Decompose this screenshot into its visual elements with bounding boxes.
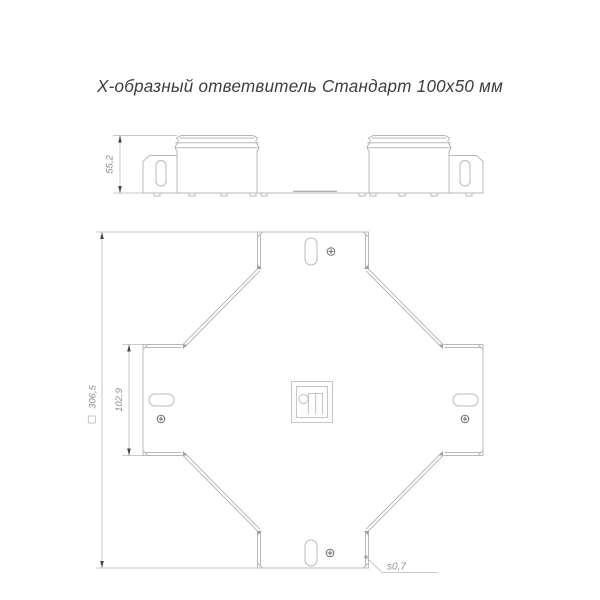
arrow-up-icon xyxy=(118,136,122,143)
mounting-slot xyxy=(460,161,470,187)
bottom-arm-slot xyxy=(305,540,317,566)
dim-text-overall: 306,5 xyxy=(88,384,99,408)
arrow-down-icon xyxy=(127,449,131,456)
brand-logo-icon xyxy=(292,382,333,423)
corner-chamfer-marks xyxy=(143,232,483,568)
side-view: 55,2 xyxy=(105,136,484,197)
screw-head-icon xyxy=(461,415,469,423)
drawing-canvas: Х-образный ответвитель Стандарт 100х50 м… xyxy=(0,0,600,600)
plate-outline xyxy=(143,232,483,568)
thickness-leader: s0,7 xyxy=(364,555,438,572)
right-arm-slot xyxy=(453,394,478,406)
left-side-rail xyxy=(175,136,259,194)
dimension-branch-width: 102,9 xyxy=(114,345,143,456)
dim-text-thickness: s0,7 xyxy=(387,562,406,573)
arrow-down-icon xyxy=(100,561,104,568)
left-end-flange xyxy=(143,156,177,194)
arrow-down-icon xyxy=(118,186,122,193)
mounting-slot xyxy=(156,161,166,187)
right-end-flange xyxy=(449,156,483,194)
screw-head-icon xyxy=(327,248,335,256)
technical-drawing: 55,2 xyxy=(0,0,600,600)
side-wall-fold-lines xyxy=(146,234,480,566)
arrow-up-icon xyxy=(127,345,131,352)
arrow-up-icon xyxy=(100,232,104,239)
top-arm-slot xyxy=(305,238,317,265)
screw-head-icon xyxy=(157,415,165,423)
left-arm-slot xyxy=(149,394,174,406)
screw-head-icon xyxy=(326,549,334,557)
plan-view: 306,5 102,9 s0,7 xyxy=(88,232,484,573)
square-section-symbol xyxy=(88,416,95,423)
dim-text-branch-width: 102,9 xyxy=(114,387,125,411)
dim-text-height: 55,2 xyxy=(105,155,116,174)
right-side-rail xyxy=(367,136,451,194)
